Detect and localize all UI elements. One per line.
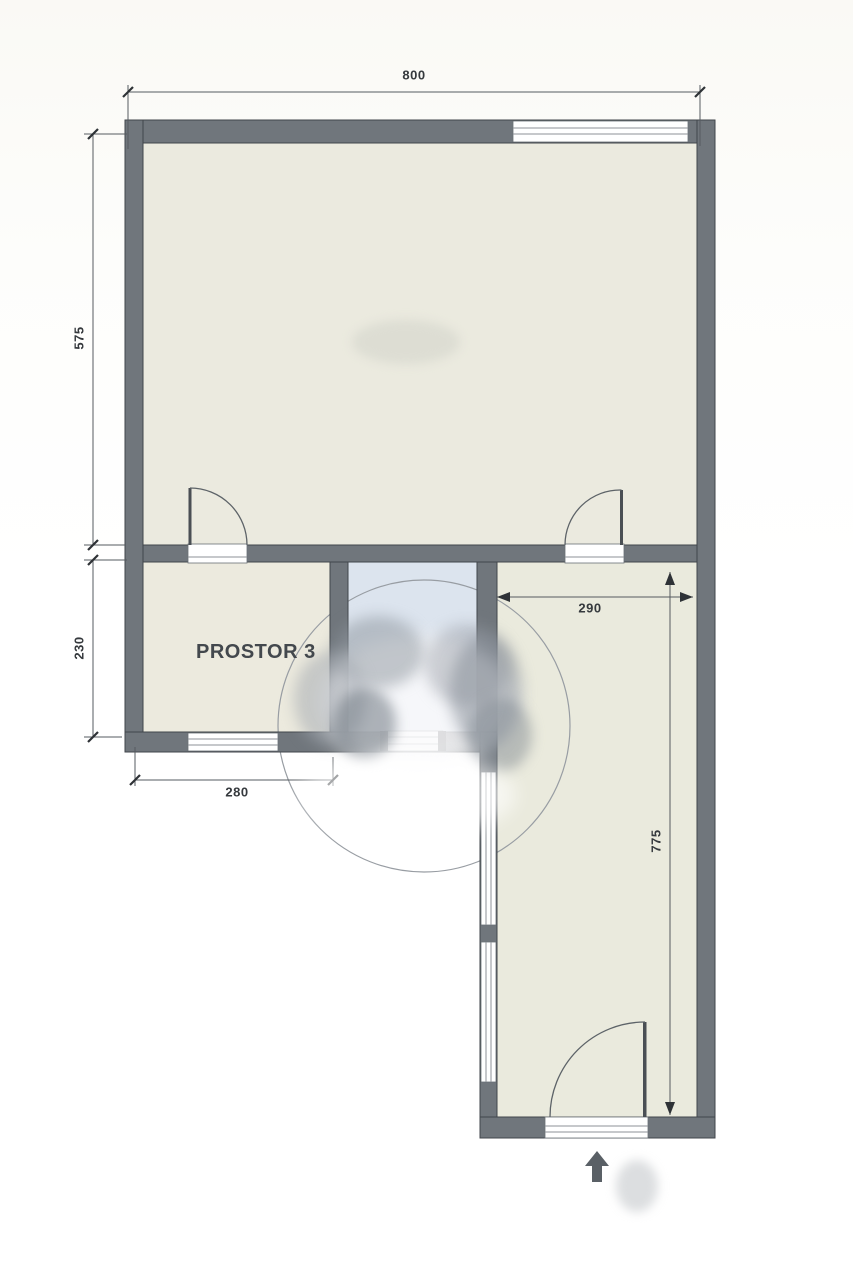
bathroom-window-post <box>438 731 446 751</box>
dim-label-right-room-width: 290 <box>578 601 601 616</box>
top-window <box>513 121 688 142</box>
entrance-door-leaf <box>643 1022 647 1117</box>
bathroom-floor <box>348 562 477 732</box>
dim-label-right-room-height: 775 <box>649 829 664 852</box>
floor-plan-drawing <box>0 0 853 1280</box>
room-label-prostor3: PROSTOR 3 <box>196 641 316 664</box>
wing-window-2 <box>481 942 496 1082</box>
bathroom-window <box>385 731 443 751</box>
left-door-leaf <box>189 488 192 545</box>
bathroom-window-post <box>380 731 388 751</box>
dim-label-upper-left-height: 575 <box>72 326 87 349</box>
dim-label-top-width: 800 <box>402 68 425 83</box>
entrance-door-opening <box>545 1117 648 1138</box>
right-door-leaf <box>620 490 623 545</box>
left-wall <box>125 120 143 752</box>
right-door-opening <box>565 544 624 563</box>
bathroom-right-wall <box>477 562 497 740</box>
dim-label-lower-left-height: 230 <box>72 636 87 659</box>
right-wall <box>697 120 715 1138</box>
left-door-opening <box>188 544 247 563</box>
right-room-floor <box>497 562 697 1117</box>
prostor3-window <box>188 733 278 751</box>
dim-label-bottom-left-width: 280 <box>225 785 248 800</box>
wing-window-1 <box>481 772 496 925</box>
floor-plan-canvas: 800 575 230 280 290 775 PROSTOR 3 <box>0 0 853 1280</box>
main-room-floor <box>143 143 697 545</box>
room-floors <box>143 143 697 1117</box>
entrance-arrow-icon <box>585 1151 609 1182</box>
bathroom-left-wall <box>330 562 348 732</box>
